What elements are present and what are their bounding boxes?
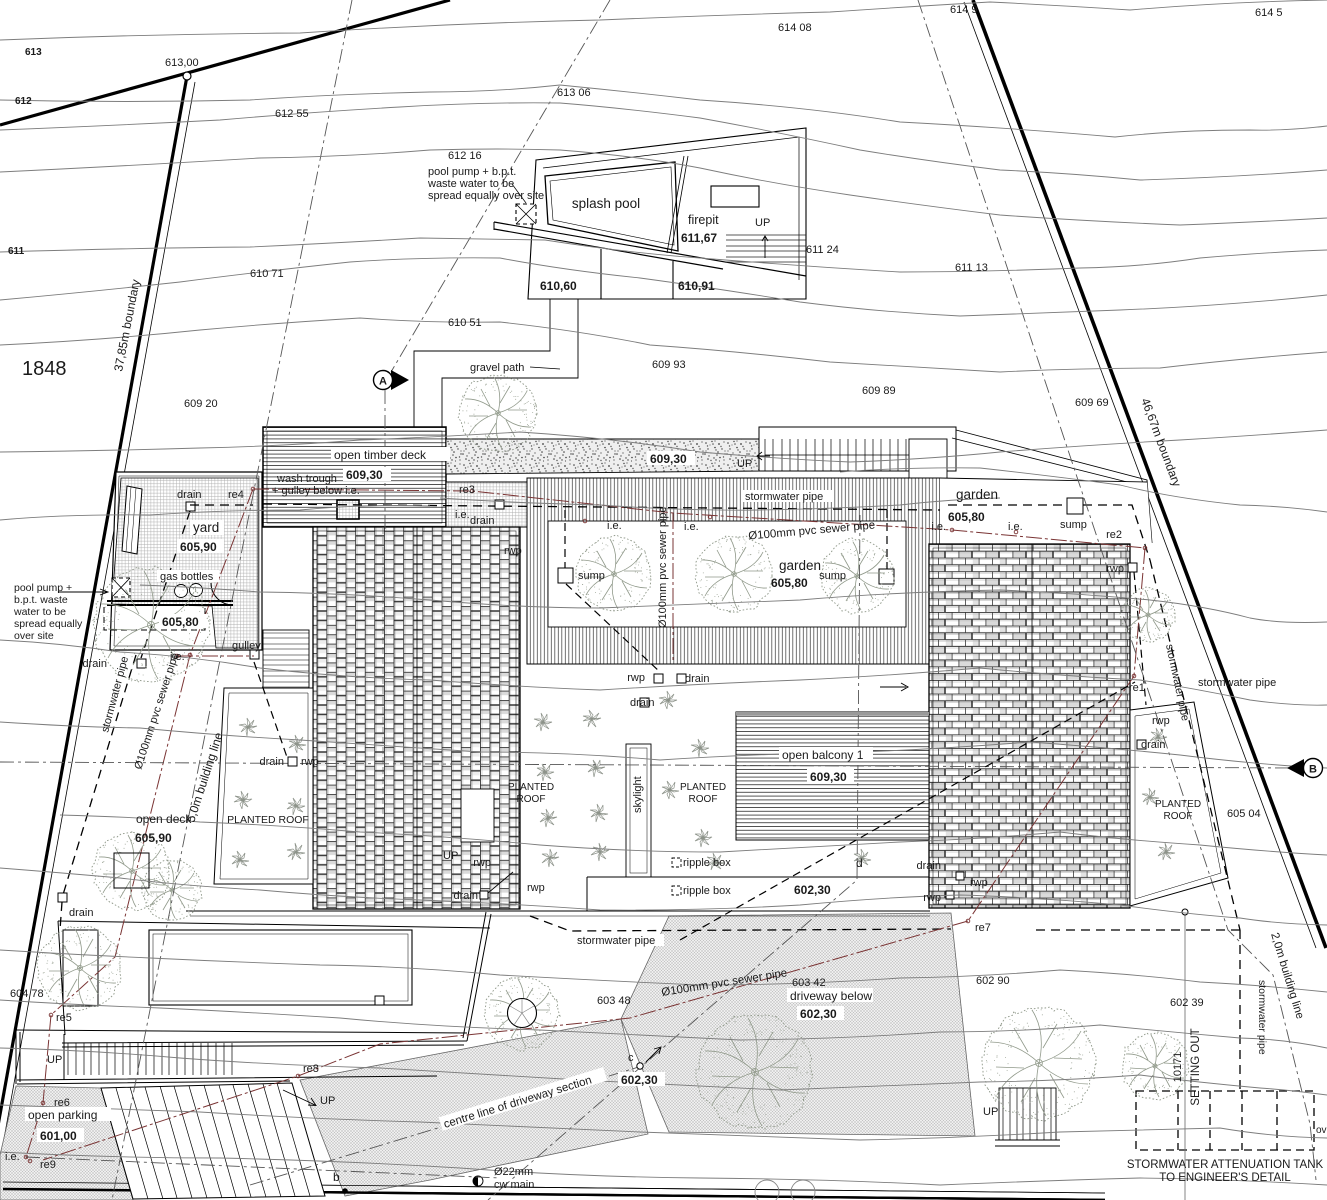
svg-text:604 78: 604 78 — [10, 988, 44, 1000]
svg-text:over site: over site — [14, 630, 54, 642]
svg-text:B: B — [1309, 764, 1317, 776]
svg-text:UP: UP — [443, 850, 458, 862]
svg-text:611 13: 611 13 — [955, 262, 988, 274]
svg-text:sump: sump — [1060, 519, 1087, 531]
svg-text:re8: re8 — [303, 1063, 319, 1075]
svg-text:609,30: 609,30 — [346, 468, 383, 482]
svg-text:drain: drain — [685, 673, 709, 685]
svg-text:601,00: 601,00 — [40, 1129, 77, 1143]
svg-text:b: b — [333, 1170, 340, 1184]
svg-text:b.p.t. waste: b.p.t. waste — [14, 594, 68, 606]
svg-text:609 89: 609 89 — [862, 385, 896, 397]
svg-text:UP: UP — [755, 217, 770, 229]
svg-text:609 20: 609 20 — [184, 398, 218, 410]
svg-text:612 55: 612 55 — [275, 108, 309, 120]
svg-text:609 93: 609 93 — [652, 359, 686, 371]
svg-text:re3: re3 — [459, 484, 475, 496]
svg-text:UP: UP — [320, 1095, 335, 1107]
svg-text:610 71: 610 71 — [250, 268, 284, 280]
svg-text:609,30: 609,30 — [650, 452, 687, 466]
svg-text:605,90: 605,90 — [135, 831, 172, 845]
svg-text:613: 613 — [25, 47, 42, 58]
svg-text:UP: UP — [983, 1106, 998, 1118]
svg-text:skylight: skylight — [632, 776, 644, 813]
svg-text:stormwater pipe: stormwater pipe — [745, 491, 823, 503]
svg-text:i.e.: i.e. — [607, 520, 622, 532]
svg-text:602 39: 602 39 — [1170, 997, 1204, 1009]
svg-text:drain: drain — [630, 697, 654, 709]
svg-text:PLANTED ROOF: PLANTED ROOF — [227, 814, 309, 826]
svg-text:spread equally over site: spread equally over site — [428, 190, 544, 202]
svg-text:605,80: 605,80 — [162, 615, 199, 629]
svg-text:splash pool: splash pool — [572, 196, 640, 211]
svg-text:drain: drain — [917, 860, 941, 872]
svg-text:rwp: rwp — [504, 545, 522, 557]
svg-text:cw main: cw main — [494, 1179, 534, 1191]
svg-text:602 90: 602 90 — [976, 975, 1010, 987]
svg-text:+ gulley below i.e.: + gulley below i.e. — [272, 485, 360, 497]
svg-text:602,30: 602,30 — [800, 1007, 837, 1021]
svg-text:open deck: open deck — [136, 812, 192, 826]
svg-text:ROOF: ROOF — [517, 794, 546, 805]
svg-text:rwp: rwp — [301, 756, 319, 768]
svg-text:613 06: 613 06 — [557, 87, 591, 99]
svg-text:PLANTED: PLANTED — [1155, 799, 1201, 810]
svg-text:drain: drain — [454, 890, 478, 902]
svg-text:UP: UP — [47, 1054, 62, 1066]
svg-text:611 24: 611 24 — [806, 244, 839, 256]
svg-text:i.e.: i.e. — [931, 521, 946, 533]
svg-text:SETTING OUT: SETTING OUT — [1190, 1028, 1202, 1105]
svg-text:ROOF: ROOF — [1164, 811, 1193, 822]
svg-text:A: A — [379, 376, 387, 388]
svg-text:gulley: gulley — [232, 640, 261, 652]
svg-text:613,00: 613,00 — [165, 57, 199, 69]
svg-text:rwp: rwp — [627, 672, 645, 684]
svg-text:gas bottles: gas bottles — [160, 571, 214, 583]
svg-text:UP: UP — [737, 458, 752, 470]
svg-text:ripple box: ripple box — [683, 885, 731, 897]
svg-text:rwp: rwp — [527, 882, 545, 894]
svg-text:c: c — [628, 1052, 634, 1064]
svg-text:i.e.: i.e. — [455, 509, 470, 521]
svg-text:i.e.: i.e. — [5, 1151, 20, 1163]
svg-text:605,80: 605,80 — [771, 576, 808, 590]
svg-text:ROOF: ROOF — [689, 794, 718, 805]
svg-text:Ø100mm pvc sewer pipe: Ø100mm pvc sewer pipe — [657, 506, 669, 628]
svg-text:1848: 1848 — [22, 358, 67, 380]
svg-text:Ø22mm: Ø22mm — [494, 1166, 533, 1178]
svg-text:i.e.: i.e. — [1008, 521, 1023, 533]
svg-text:stormwater pipe: stormwater pipe — [577, 935, 655, 947]
svg-text:605,80: 605,80 — [948, 510, 985, 524]
svg-text:garden: garden — [779, 558, 821, 573]
svg-text:re5: re5 — [56, 1012, 72, 1024]
svg-text:rwp: rwp — [970, 877, 988, 889]
svg-text:garden: garden — [956, 487, 998, 502]
svg-text:609 69: 609 69 — [1075, 397, 1109, 409]
svg-text:waste water to be: waste water to be — [427, 178, 514, 190]
svg-text:i.e.: i.e. — [684, 521, 699, 533]
svg-text:614 08: 614 08 — [778, 22, 812, 34]
svg-text:re7: re7 — [975, 922, 991, 934]
svg-text:drain: drain — [260, 756, 284, 768]
svg-text:d: d — [856, 856, 863, 870]
svg-text:drain: drain — [69, 907, 93, 919]
svg-text:drain: drain — [177, 489, 201, 501]
svg-text:open timber deck: open timber deck — [334, 448, 427, 462]
svg-text:602,30: 602,30 — [621, 1073, 658, 1087]
svg-text:rwp: rwp — [923, 892, 941, 904]
svg-text:10171: 10171 — [1172, 1052, 1184, 1083]
svg-text:STORMWATER ATTENUATION TANK: STORMWATER ATTENUATION TANK — [1127, 1159, 1324, 1171]
svg-text:sump: sump — [819, 570, 846, 582]
svg-text:re4: re4 — [228, 489, 244, 501]
svg-text:re2: re2 — [1106, 529, 1122, 541]
svg-text:605 04: 605 04 — [1227, 808, 1261, 820]
svg-text:605,90: 605,90 — [180, 540, 217, 554]
svg-text:612 16: 612 16 — [448, 150, 482, 162]
svg-text:609,30: 609,30 — [810, 770, 847, 784]
svg-text:602,30: 602,30 — [794, 883, 831, 897]
svg-text:driveway below: driveway below — [790, 989, 872, 1003]
svg-text:603 42: 603 42 — [792, 977, 826, 989]
svg-text:TO ENGINEER'S DETAIL: TO ENGINEER'S DETAIL — [1159, 1172, 1291, 1184]
svg-text:rwp: rwp — [1152, 715, 1170, 727]
svg-text:drain: drain — [470, 515, 494, 527]
svg-text:612: 612 — [15, 96, 32, 107]
svg-text:drain: drain — [1141, 739, 1165, 751]
svg-text:pool pump + b.p.t.: pool pump + b.p.t. — [428, 166, 516, 178]
svg-text:603 48: 603 48 — [597, 995, 631, 1007]
svg-text:open parking: open parking — [28, 1108, 97, 1122]
svg-text:PLANTED: PLANTED — [508, 782, 554, 793]
svg-text:wash trough: wash trough — [276, 473, 337, 485]
svg-text:ripple box: ripple box — [683, 857, 731, 869]
svg-text:PLANTED: PLANTED — [680, 782, 726, 793]
svg-text:gravel path: gravel path — [470, 362, 524, 374]
svg-text:re9: re9 — [40, 1159, 56, 1171]
svg-text:ov: ov — [1316, 1125, 1327, 1136]
svg-text:rwp: rwp — [473, 857, 491, 869]
svg-text:re1: re1 — [1129, 682, 1145, 694]
svg-text:open balcony 1: open balcony 1 — [782, 748, 864, 762]
svg-text:water to be: water to be — [13, 606, 66, 618]
svg-text:611: 611 — [8, 246, 25, 257]
svg-text:stormwater pipe: stormwater pipe — [1256, 980, 1268, 1055]
svg-text:614 5: 614 5 — [1255, 7, 1283, 19]
svg-text:rwp: rwp — [1106, 563, 1124, 575]
svg-text:614 9: 614 9 — [950, 4, 978, 16]
svg-text:610,91: 610,91 — [678, 279, 715, 293]
svg-text:spread equally: spread equally — [14, 618, 83, 630]
svg-text:sump: sump — [578, 570, 605, 582]
svg-text:611,67: 611,67 — [681, 231, 717, 245]
svg-text:firepit: firepit — [688, 213, 719, 227]
svg-text:stormwater pipe: stormwater pipe — [1198, 677, 1276, 689]
svg-text:610 51: 610 51 — [448, 317, 482, 329]
svg-text:drain: drain — [83, 658, 107, 670]
svg-text:610,60: 610,60 — [540, 279, 577, 293]
svg-text:yard: yard — [193, 520, 219, 535]
